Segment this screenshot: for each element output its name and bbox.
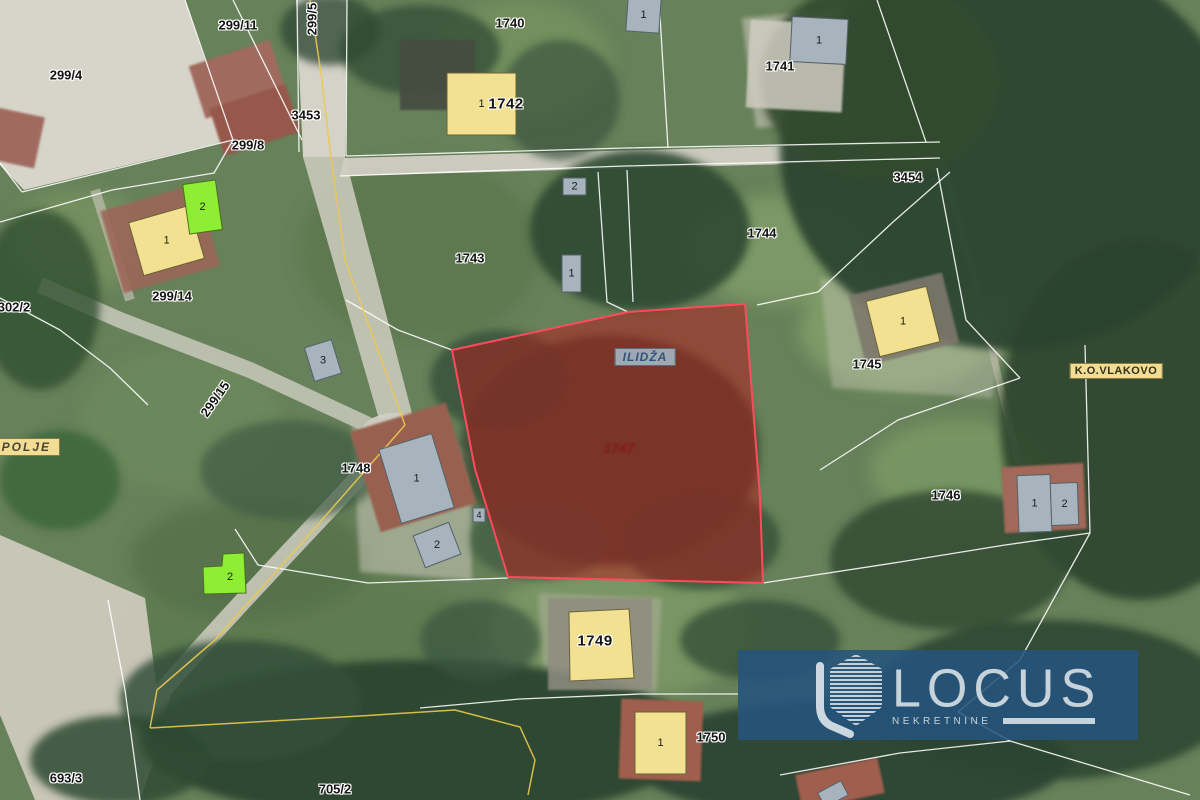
map-viewport[interactable]: 1121121121312412 299/4299/11299/53453299…	[0, 0, 1200, 800]
locus-logo-icon	[812, 652, 886, 738]
selected-parcel-layer	[452, 304, 763, 583]
building-number: 3	[320, 355, 326, 367]
building-number: 1	[900, 316, 906, 328]
building-number: 1	[816, 35, 822, 47]
building-number: 2	[1061, 498, 1067, 510]
building-number: 2	[227, 571, 233, 583]
building-number: 1	[1031, 498, 1037, 510]
locus-watermark: LOCUS NEKRETNINE	[738, 650, 1138, 740]
building-number: 1	[568, 268, 574, 280]
building-number: 1	[163, 235, 169, 247]
building-footprint[interactable]	[569, 609, 634, 681]
building-number: 1	[413, 473, 419, 485]
building-number: 1	[478, 98, 484, 110]
selected-parcel-1747[interactable]	[452, 304, 763, 583]
building-number: 1	[657, 737, 663, 749]
brand-name: LOCUS	[892, 663, 1101, 715]
building-number: 2	[571, 181, 577, 193]
building-number: 4	[476, 510, 481, 520]
building-number: 1	[640, 9, 646, 21]
building-number: 2	[434, 539, 440, 551]
building-number: 2	[199, 201, 205, 213]
